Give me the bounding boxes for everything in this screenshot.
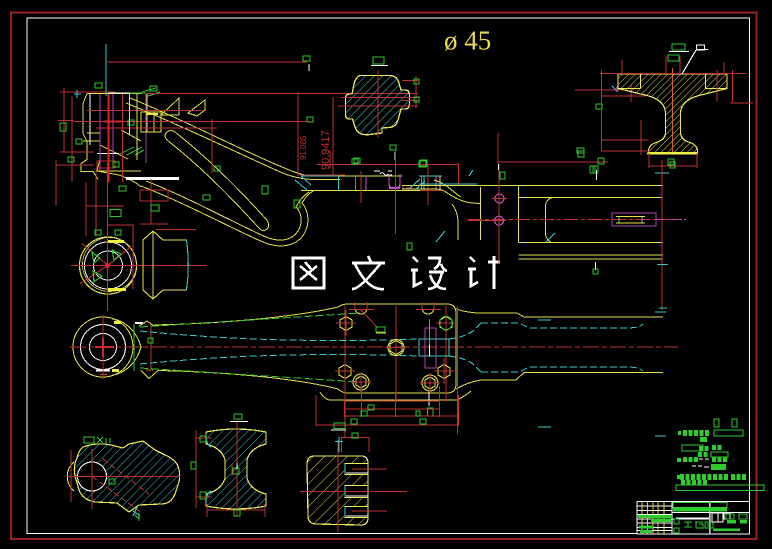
- svg-text:91.085: 91.085: [299, 135, 308, 160]
- svg-text:ø 45: ø 45: [444, 26, 491, 56]
